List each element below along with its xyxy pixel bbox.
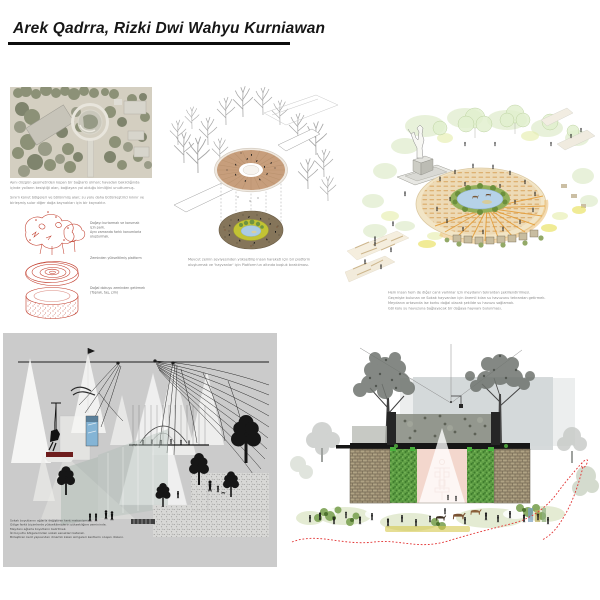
label-line: (Toprak, taş, çim) [90,291,150,296]
perspective-caption: Hem insan hem de diğer canlı varlıklar i… [388,290,588,311]
collage-caption: Sokak boyutlarını ağlarla değiştiren ken… [10,519,130,540]
site-caption-1: Aynı düzgün geometriden kopan bir bağlan… [10,180,160,191]
scale-stamp [131,519,155,524]
exploded-axonometric [168,85,338,257]
axon-top-platform [215,148,288,192]
caption-line: Mevcut zemin seviyesinden yükseltilip in… [188,257,328,262]
sketch-platform-spiral [25,261,79,287]
sketch-ground-cylinder [26,288,78,319]
hull-shape [44,457,75,462]
plaza-perspective [345,76,600,289]
axon-mid-marks [238,197,259,202]
red-accent-strip [46,452,73,457]
site-aerial-map [10,87,152,178]
plaza-deck [416,168,546,242]
label-line: oluşturmak. [90,235,150,240]
sketch-label-platform: Zeminden yükseltilmiş platform [90,256,150,261]
sketch-trees [25,212,85,256]
caption-line: Sınırlı konut bölgeleri ve bölünmüş alan… [10,195,160,200]
site-caption-2: Sınırlı konut bölgeleri ve bölünmüş alan… [10,195,160,206]
concept-sketch-red [12,210,97,320]
caption-line: içinde yolların kesiştiği alan, bağlayan… [10,185,160,190]
caption-line: Birleştiren kent yapısından dinamik kala… [10,536,130,540]
portfolio-board: Arek Qadrra, Rizki Dwi Wahyu Kurniawan [0,0,600,600]
caption-line: oluşturmak ve 'hayvanlar' için Platform'… [188,262,328,267]
axon-ground-disc [219,211,283,249]
sketch-label-ground: Doğal dokuyu zeminden getirmek (Toprak, … [90,286,150,295]
section-elevation [290,336,600,558]
photo-strip [86,416,98,446]
label-line: Zeminden yükseltilmiş platform [90,256,150,261]
page-title: Arek Qadrra, Rizki Dwi Wahyu Kurniawan [13,20,325,38]
axon-caption: Mevcut zemin seviyesinden yükseltilip in… [188,257,328,268]
title-underline [8,42,290,45]
caption-line: Göl kolu su havuzuna bağlayacak bir doğa… [388,306,588,311]
caption-line: birleşmiş sular diğer doğa kaynakları iç… [10,200,160,205]
caption-line: Aynı düzgün geometriden kopan bir bağlan… [10,180,160,185]
sketch-label-trees: Doğayı kurtarmak ve korumak için park. A… [90,221,150,239]
